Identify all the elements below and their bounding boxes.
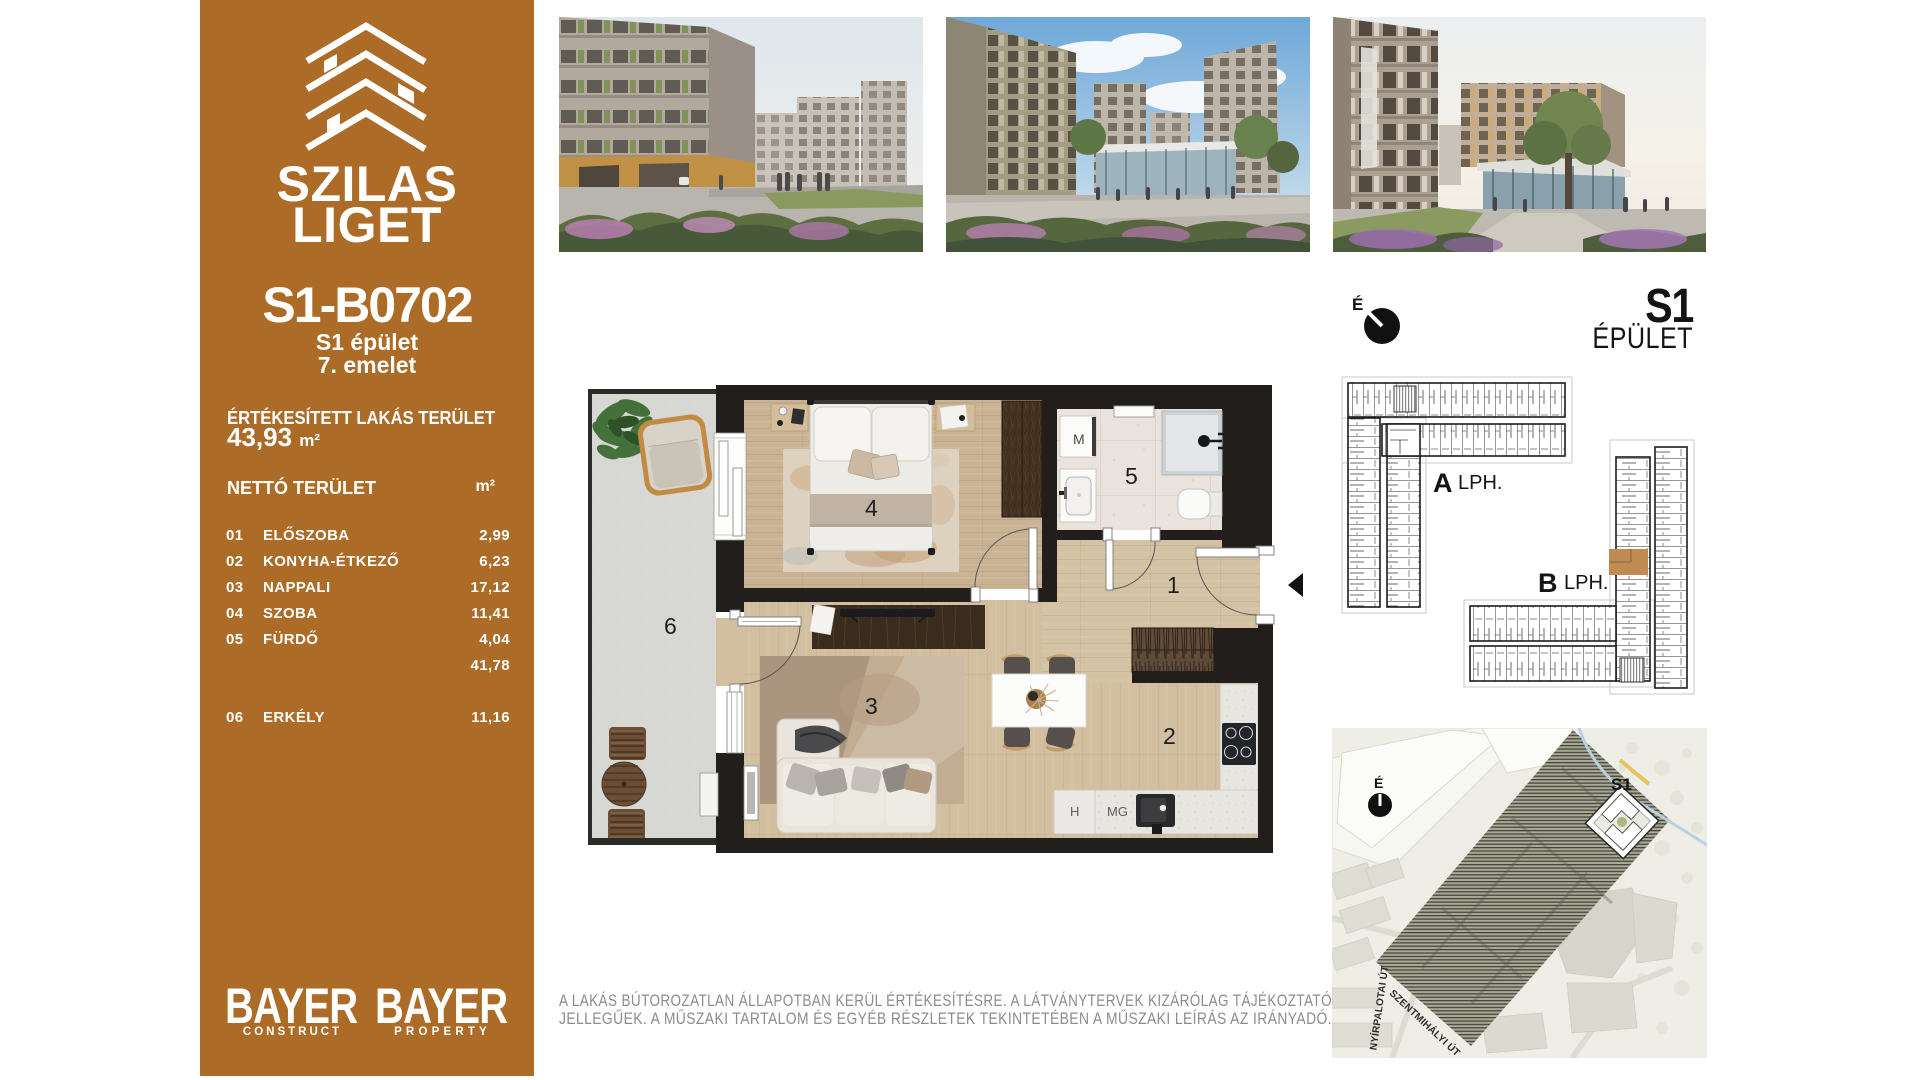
svg-text:M: M <box>1073 431 1085 447</box>
svg-text:LPH.: LPH. <box>1458 472 1502 494</box>
svg-text:B: B <box>1538 568 1558 598</box>
svg-text:5: 5 <box>1125 463 1138 489</box>
svg-text:É: É <box>1352 295 1363 314</box>
svg-text:2: 2 <box>1163 723 1176 749</box>
svg-text:A: A <box>1433 468 1453 498</box>
svg-text:S1: S1 <box>1611 775 1632 794</box>
svg-text:6: 6 <box>664 613 677 639</box>
svg-text:4: 4 <box>865 495 878 521</box>
svg-text:É: É <box>1374 775 1383 791</box>
svg-text:3: 3 <box>865 693 878 719</box>
svg-text:H: H <box>1070 804 1079 819</box>
svg-text:1: 1 <box>1167 572 1180 598</box>
svg-text:LPH.: LPH. <box>1564 572 1608 594</box>
svg-text:MG: MG <box>1107 804 1128 819</box>
